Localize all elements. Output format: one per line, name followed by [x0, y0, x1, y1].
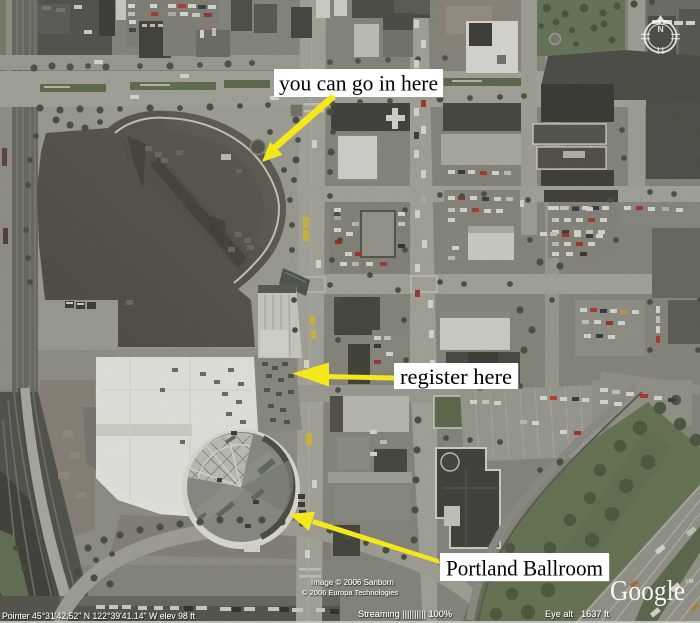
svg-text:N: N	[657, 24, 663, 34]
svg-text:Pointer 45°31'42.52" N 122°39: Pointer 45°31'42.52" N 122°39'41.14" W e…	[2, 611, 195, 621]
svg-text:1637 ft: 1637 ft	[581, 609, 610, 619]
svg-text:© 2006 Europa Technologies: © 2006 Europa Technologies	[302, 588, 399, 597]
svg-text:register here: register here	[400, 364, 512, 389]
svg-text:Eye alt: Eye alt	[545, 609, 574, 619]
svg-text:Portland Ballroom: Portland Ballroom	[446, 556, 603, 581]
svg-text:you can go in here: you can go in here	[279, 71, 438, 96]
svg-text:TM: TM	[685, 579, 694, 585]
svg-text:Image © 2006 Sanborn: Image © 2006 Sanborn	[311, 578, 394, 587]
svg-text:Streaming |||||||||| 100%: Streaming |||||||||| 100%	[358, 609, 452, 619]
svg-text:Google: Google	[610, 575, 685, 607]
